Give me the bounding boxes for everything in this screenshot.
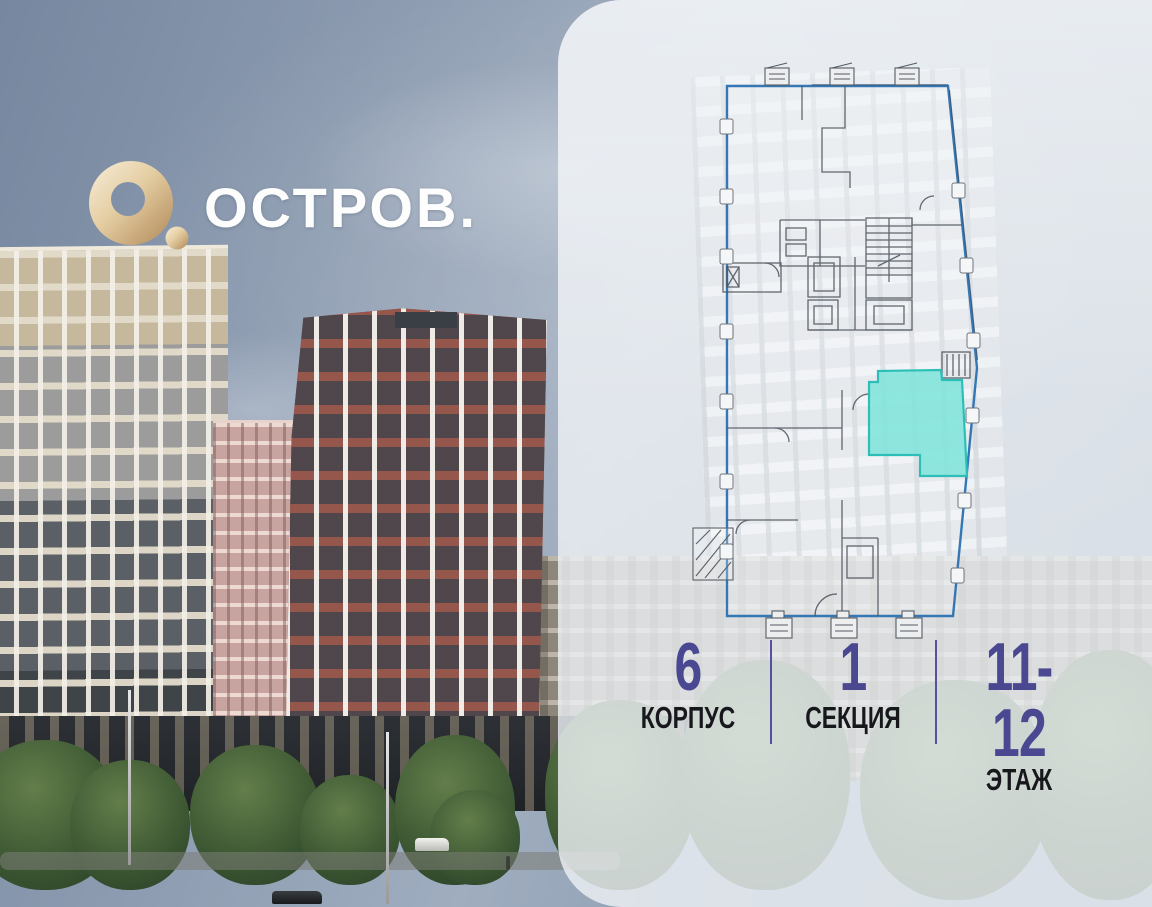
street-lamp xyxy=(386,732,389,904)
car xyxy=(415,838,449,851)
plan-boundary xyxy=(727,86,977,616)
section-label: СЕКЦИЯ xyxy=(798,702,908,734)
stat-building: 6 КОРПУС xyxy=(614,634,762,734)
stat-floor: 11-12 ЭТАЖ xyxy=(944,634,1094,796)
street-lamp xyxy=(128,690,131,865)
brand-name: ОСТРОВ. xyxy=(204,180,478,236)
section-number: 1 xyxy=(795,634,910,700)
unit-stats: 6 КОРПУС 1 СЕКЦИЯ 11-12 ЭТАЖ xyxy=(614,634,1094,796)
stats-divider xyxy=(770,640,772,744)
apartment-selector-screen: ОСТРОВ. xyxy=(0,0,1152,907)
stats-divider xyxy=(935,640,937,744)
rooftop-equipment xyxy=(395,312,457,328)
brand-logo: ОСТРОВ. xyxy=(86,156,506,266)
unit-info-panel: 6 КОРПУС 1 СЕКЦИЯ 11-12 ЭТАЖ xyxy=(558,0,1152,907)
brand-ring-icon xyxy=(86,156,198,256)
floor-label: ЭТАЖ xyxy=(964,764,1075,796)
pedestrian xyxy=(506,856,510,870)
stat-section: 1 СЕКЦИЯ xyxy=(779,634,927,734)
walkway xyxy=(0,852,620,870)
building-number: 6 xyxy=(630,634,745,700)
floor-plan xyxy=(690,60,990,640)
building-label: КОРПУС xyxy=(633,702,743,734)
floor-number: 11-12 xyxy=(961,634,1078,765)
tower-red xyxy=(285,306,547,774)
car xyxy=(272,891,322,904)
